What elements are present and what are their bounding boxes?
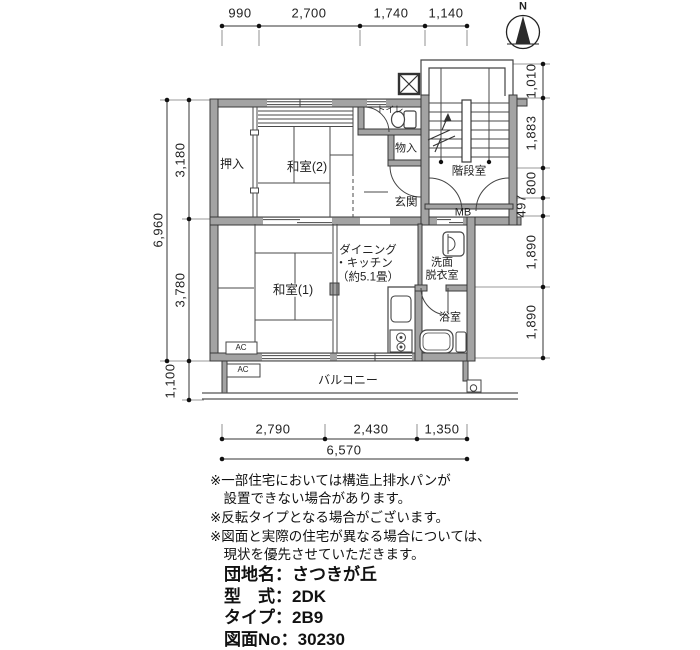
dim-bottom-1: 2,790 — [255, 423, 290, 436]
info-separator: ： — [275, 587, 292, 606]
stair-landing-outline — [421, 60, 513, 96]
dim-bottom-total: 6,570 — [326, 444, 361, 457]
dim-top-4: 1,140 — [428, 7, 463, 20]
wall-right-lower — [467, 217, 475, 361]
room-label-dk-3: （約5.1畳） — [337, 272, 399, 284]
info-label: 団地名 — [224, 565, 275, 584]
dim-right-2: 1,883 — [525, 115, 538, 150]
dimension-dots — [165, 24, 546, 462]
dim-right-3: 800 — [525, 171, 538, 194]
info-separator: ： — [275, 565, 292, 584]
kitchen-sink — [391, 296, 411, 322]
info-label: 図面No — [224, 630, 281, 649]
washbasin — [443, 232, 464, 256]
note-item: ※反転タイプとなる場合がございます。 — [210, 509, 540, 527]
room-label-kaidanshitsu: 階段室 — [451, 166, 488, 178]
dim-left-balcony: 1,100 — [164, 363, 177, 398]
wall-bath-divider-b — [446, 285, 467, 291]
room-label-dk-1: ダイニング — [339, 245, 397, 257]
north-arrow-icon — [507, 16, 540, 49]
info-value: 2DK — [292, 587, 326, 606]
dim-right-4: 497 — [515, 194, 528, 217]
wall-balcony-left — [222, 361, 227, 393]
info-separator: ： — [275, 608, 292, 627]
info-row-katashiki: 型 式：2DK — [224, 586, 377, 608]
dim-left-upper: 3,180 — [174, 142, 187, 177]
room-label-washitsu2: 和室(2) — [287, 161, 327, 174]
info-value: さつきが丘 — [292, 565, 377, 584]
info-row-zumen: 図面No：30230 — [224, 629, 377, 650]
room-label-senmen-1: 洗面 — [431, 258, 453, 269]
ac-label-balcony: AC — [237, 366, 248, 374]
property-info: 団地名：さつきが丘 型 式：2DK タイプ：2B9 図面No：30230 — [224, 564, 377, 650]
dimension-lines — [167, 26, 543, 459]
room-label-toilet: トイレ — [376, 106, 403, 115]
north-label: N — [519, 2, 527, 13]
dim-left-lower: 3,780 — [174, 272, 187, 307]
room-label-oshiire: 押入 — [220, 158, 244, 170]
dim-right-1: 1,010 — [525, 63, 538, 98]
room-label-monoire: 物入 — [395, 144, 417, 155]
dim-top-1: 990 — [228, 7, 251, 20]
disclaimer-notes: ※一部住宅においては構造上排水パンが 設置できない場合があります。 ※反転タイプ… — [210, 472, 540, 565]
wall-left — [210, 99, 218, 361]
stairs — [428, 68, 509, 211]
room-label-yokushitsu: 浴室 — [439, 313, 461, 324]
room-label-mb: MB — [455, 208, 472, 219]
dim-bottom-2: 2,430 — [353, 423, 388, 436]
note-item: ※一部住宅においては構造上排水パンが 設置できない場合があります。 — [210, 472, 540, 508]
info-label: タイプ — [224, 608, 275, 627]
room-label-senmen-2: 脱衣室 — [426, 271, 459, 282]
wall-stub-right — [517, 99, 527, 106]
info-label: 型 式 — [224, 587, 275, 606]
room-label-balcony: バルコニー — [318, 374, 378, 386]
info-row-danchi: 団地名：さつきが丘 — [224, 564, 377, 586]
wall-balcony-right — [463, 361, 468, 381]
room-label-genkan: 玄関 — [395, 197, 418, 209]
kitchen-fixtures — [388, 287, 415, 353]
chute-icon — [399, 74, 419, 94]
info-value: 2B9 — [292, 608, 323, 627]
ac-label-room: AC — [235, 344, 246, 352]
bathtub — [420, 330, 453, 353]
room-label-washitsu1: 和室(1) — [271, 284, 315, 297]
note-item: ※図面と実際の住宅が異なる場合については、 現状を優先させていただきます。 — [210, 528, 540, 564]
floor-plan-page: 990 2,700 1,740 1,140 6,960 3,180 3,780 … — [0, 0, 700, 650]
dim-right-6: 1,890 — [525, 304, 538, 339]
info-value: 30230 — [298, 630, 345, 649]
dim-top-2: 2,700 — [291, 7, 326, 20]
wall-storage-bottom — [388, 160, 421, 166]
pillar-dk — [330, 283, 339, 295]
room-label-dk-2: ・キッチン — [335, 258, 393, 270]
dim-top-3: 1,740 — [373, 7, 408, 20]
interior-lines — [218, 107, 388, 353]
dim-right-5: 1,890 — [525, 234, 538, 269]
entrance-door-arc — [390, 166, 421, 197]
dim-left-total: 6,960 — [152, 212, 165, 247]
wall-washroom-left — [418, 224, 422, 287]
dim-bottom-3: 1,350 — [424, 423, 459, 436]
info-separator: ： — [281, 630, 298, 649]
info-row-type: タイプ：2B9 — [224, 607, 377, 629]
washroom-fixtures — [420, 232, 466, 353]
